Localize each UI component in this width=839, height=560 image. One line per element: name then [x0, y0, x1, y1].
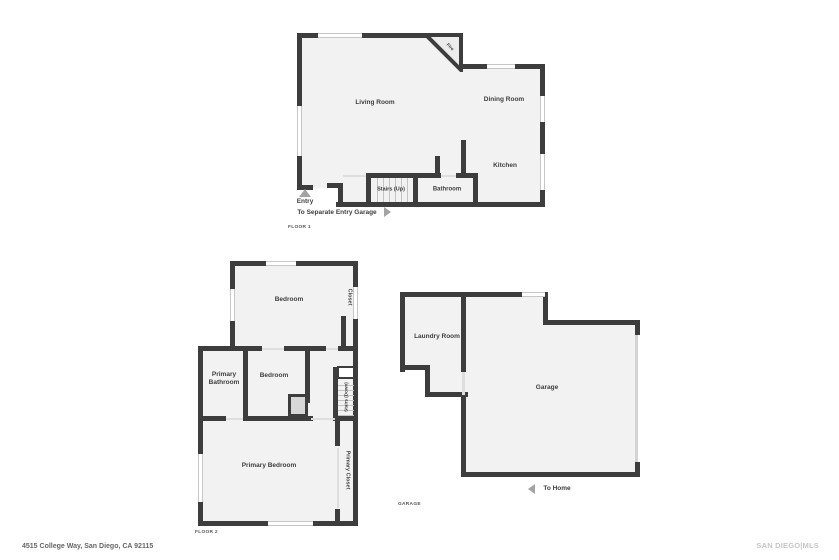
room-fill [543, 322, 635, 475]
window-marker [230, 289, 235, 321]
room-fill [232, 263, 354, 351]
room-label-primary-bedroom: Primary Bedroom [242, 462, 297, 470]
room-fill [464, 295, 543, 475]
room-label-stairs-down: Stairs (Down) [343, 377, 348, 417]
floor-plan-canvas: Fire Living Room Dining Room Kitchen Bat… [0, 0, 839, 560]
room-label-primary-bathroom: Primary Bathroom [202, 371, 246, 387]
door-opening [311, 418, 335, 420]
door-opening [226, 418, 243, 420]
room-label-living-room: Living Room [355, 99, 394, 107]
room-label-dining-room: Dining Room [484, 96, 524, 104]
window-marker [540, 96, 545, 122]
wall-segment [198, 416, 226, 421]
garage-door-edge [635, 335, 638, 462]
window-marker [540, 154, 545, 190]
mls-watermark: SAN DIEGO|MLS [756, 541, 819, 550]
wall-segment [338, 183, 343, 207]
garage-tag: GARAGE [398, 502, 421, 507]
room-label-bedroom-mid: Bedroom [260, 372, 289, 380]
wall-segment [461, 140, 466, 178]
room-label-kitchen: Kitchen [493, 162, 517, 170]
door-opening [462, 372, 465, 395]
fireplace-shape [424, 31, 465, 72]
wall-segment [461, 292, 466, 372]
chimney-shape [288, 394, 308, 417]
door-opening [326, 348, 338, 350]
room-label-primary-closet: Primary Closet [344, 451, 351, 490]
window-marker [297, 106, 302, 156]
wall-segment [435, 156, 440, 178]
door-opening [262, 348, 284, 350]
separate-entry-label: To Separate Entry Garage [297, 209, 376, 217]
door-opening [441, 175, 456, 177]
wall-segment [461, 472, 640, 477]
address-text: 4515 College Way, San Diego, CA 92115 [22, 543, 153, 550]
floor2-tag: FLOOR 2 [195, 530, 218, 535]
separate-entry-arrow-icon [384, 207, 391, 217]
wall-segment [473, 173, 478, 207]
room-label-garage: Garage [536, 384, 558, 392]
room-label-laundry: Laundry Room [414, 333, 460, 341]
window-marker [353, 287, 358, 319]
floor1-tag: FLOOR 1 [288, 225, 311, 230]
window-marker [318, 33, 362, 38]
room-label-bathroom: Bathroom [433, 186, 461, 194]
wall-segment [461, 395, 466, 477]
wall-segment [198, 346, 262, 351]
to-home-arrow-icon [528, 484, 535, 494]
wall-segment [400, 292, 405, 372]
entry-arrow-icon [299, 189, 311, 197]
wall-segment [366, 173, 371, 207]
door-opening [343, 175, 366, 177]
wall-segment [543, 320, 640, 325]
window-marker [198, 454, 203, 502]
wall-segment [635, 320, 640, 335]
to-home-label: To Home [543, 485, 570, 493]
room-label-closet: Closet [346, 289, 353, 306]
wall-segment [413, 173, 418, 207]
room-label-bedroom-top: Bedroom [275, 296, 304, 304]
window-marker [522, 292, 545, 297]
window-marker [268, 521, 313, 526]
wall-segment [198, 521, 268, 526]
window-marker [487, 64, 515, 69]
room-label-stairs-up: Stairs (Up) [377, 187, 405, 194]
wall-segment [335, 509, 340, 526]
wall-segment [338, 346, 358, 351]
window-marker [266, 261, 296, 266]
wall-segment [198, 346, 203, 456]
door-opening [337, 448, 339, 508]
entry-label: Entry [297, 198, 314, 206]
